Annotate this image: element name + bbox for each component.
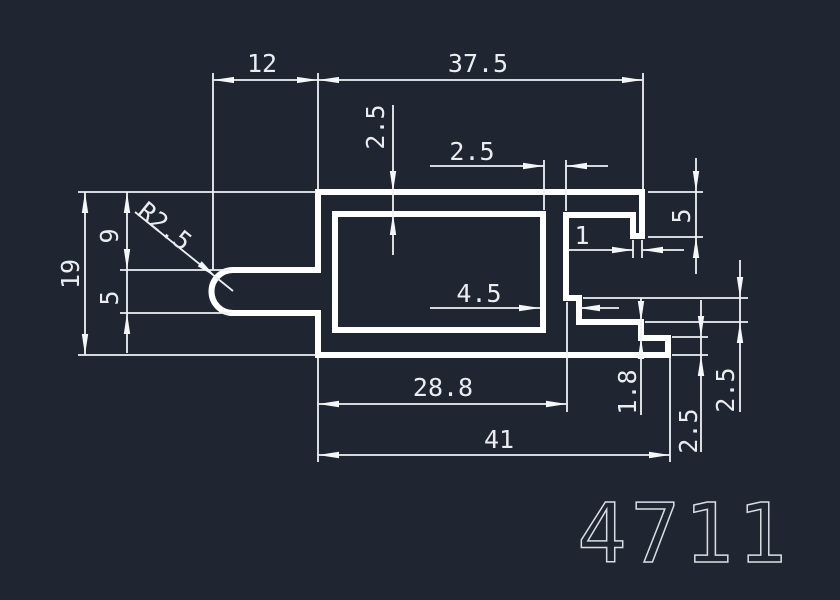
dim-label: 12 xyxy=(247,49,277,78)
dim-arrows xyxy=(519,305,600,311)
dim-arrows xyxy=(523,163,587,169)
dim-label: 5 xyxy=(667,208,696,223)
dimension-inner-width: 28.8 xyxy=(318,302,567,462)
dim-label: 2.5 xyxy=(711,367,740,412)
dim-label: 28.8 xyxy=(413,373,473,402)
dimension-lip-height: 2.5 xyxy=(672,300,708,454)
dimension-hook-depth: 5 xyxy=(648,158,703,274)
dim-label: 1 xyxy=(574,221,589,250)
dim-label: R2.5 xyxy=(132,196,197,256)
dimension-right-wall: 2.5 xyxy=(430,137,608,211)
dim-label: 4.5 xyxy=(456,279,501,308)
dim-arrows xyxy=(124,313,130,334)
dim-label: 41 xyxy=(484,425,514,454)
dim-label: 2.5 xyxy=(449,137,494,166)
profile-inner-cavity xyxy=(335,214,543,330)
dim-label: 1.8 xyxy=(613,369,642,414)
dim-arrows xyxy=(612,247,663,253)
drawing-number: 4711 xyxy=(577,487,790,582)
cad-drawing-canvas: 12 37.5 19 9 5 R2.5 2.5 2.5 xyxy=(0,0,840,600)
dim-lines xyxy=(213,73,318,270)
dimension-top-wall: 2.5 xyxy=(361,104,396,255)
dim-label: 2.5 xyxy=(361,104,390,149)
dimension-hook-wall: 1 xyxy=(568,221,684,258)
dim-label: 37.5 xyxy=(448,49,508,78)
dim-label: 9 xyxy=(95,228,124,243)
dim-label: 2.5 xyxy=(674,408,703,453)
dimension-top-left-width: 12 xyxy=(213,49,318,270)
dimension-total-height: 19 xyxy=(56,192,316,355)
dim-label: 19 xyxy=(56,259,85,289)
dim-label: 5 xyxy=(95,290,124,305)
dimension-groove-width: 4.5 xyxy=(430,279,619,311)
dim-lines xyxy=(78,192,316,355)
